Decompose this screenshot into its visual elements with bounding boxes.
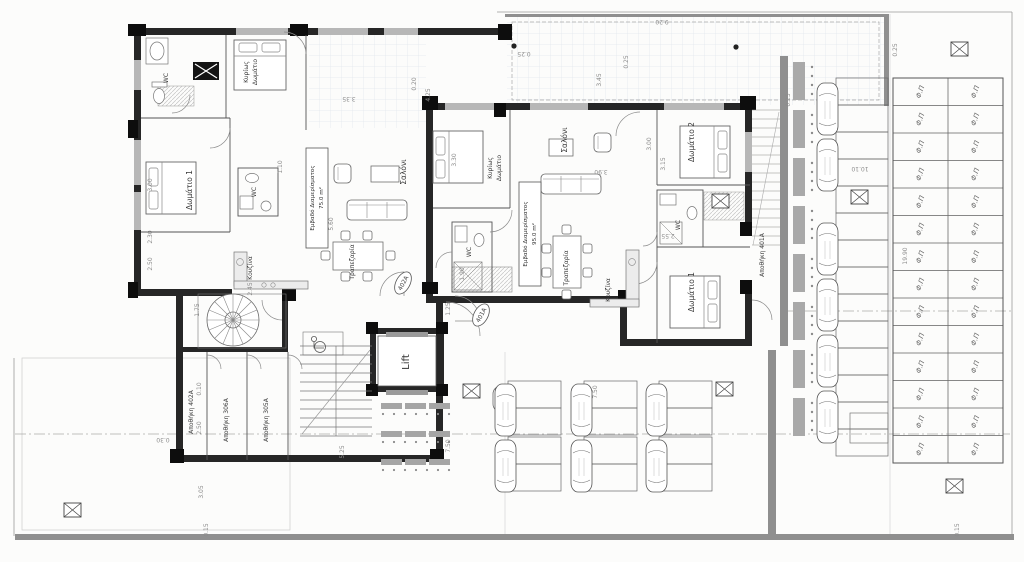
room-label-storage-306a: Αποθήκη 306Α [223, 397, 230, 442]
bike-rack-dot [811, 306, 813, 308]
dimension-label: 19.90 [902, 247, 909, 264]
shaft-marker [193, 62, 219, 80]
bike-rack-dot [811, 114, 813, 116]
unit-tag-402a: 402A [391, 269, 415, 297]
corridor-tiles [309, 35, 426, 128]
bike-rack-dot [811, 276, 813, 278]
car [495, 440, 516, 492]
bike-rack-bar [405, 403, 426, 409]
sofa [541, 174, 601, 194]
bike-rack-dot [811, 354, 813, 356]
side-stair [752, 110, 780, 245]
room-label-kitchen: Κουζίνα [247, 256, 254, 280]
bike-rack-bar [793, 110, 805, 148]
parking-stall [850, 413, 888, 443]
bike-rack-dot [811, 267, 813, 269]
bike-rack-bar [793, 62, 805, 100]
bike-rack-dot [415, 469, 417, 471]
dimension-label: 0.25 [623, 55, 630, 69]
bike-rack-dot [811, 84, 813, 86]
bike-rack-dot [811, 285, 813, 287]
bike-rack-dot [415, 413, 417, 415]
dimension-label: 0.15 [954, 523, 961, 537]
bike-rack-dot [393, 413, 395, 415]
armchair [334, 164, 351, 183]
parking-stall [836, 402, 888, 429]
area-label-402a: Εμβαδό Διαμερίσματος [309, 165, 316, 230]
bike-rack-dot [811, 420, 813, 422]
parking-stall [836, 429, 888, 456]
room-label-living: Σαλόνι [399, 159, 408, 185]
dimension-label: 0.25 [517, 50, 531, 57]
pv-panel-grid [893, 78, 1003, 463]
bike-rack-dot [811, 180, 813, 182]
bike-rack-dot [404, 441, 406, 443]
dimension-label: 3.05 [198, 485, 205, 499]
bike-rack-dot [811, 162, 813, 164]
bike-rack-dot [811, 324, 813, 326]
bike-rack-dot [811, 189, 813, 191]
dimension-label: 5.25 [339, 445, 346, 459]
dimension-label: 2.45 [247, 282, 254, 296]
parking-stall [836, 294, 888, 321]
room-label-wc: WC [675, 220, 682, 230]
dimension-label: 10.10 [851, 165, 868, 172]
room-label-bedroom2: Δωμάτιο 2 [687, 122, 696, 162]
terrace-column-dot [733, 44, 738, 49]
bike-rack-bar [429, 459, 450, 465]
bike-rack-dot [811, 141, 813, 143]
bike-rack-dot [404, 413, 406, 415]
bike-rack-dot [426, 413, 428, 415]
bike-rack-bar [793, 398, 805, 436]
bike-rack-dot [811, 315, 813, 317]
parking-stall [836, 321, 888, 348]
dimension-label: 7.50 [592, 385, 599, 399]
bike-rack-bar [381, 459, 402, 465]
bike-rack-dot [811, 429, 813, 431]
car [817, 139, 838, 191]
bike-rack-dot [382, 469, 384, 471]
dimension-label: 1.10 [277, 160, 284, 174]
dimension-label: 2.30 [147, 230, 154, 244]
bike-rack-bar [793, 206, 805, 244]
dimension-label: 1.25 [445, 302, 452, 316]
bike-rack-dot [426, 469, 428, 471]
parking-stall [836, 105, 888, 132]
bike-rack-dot [811, 210, 813, 212]
dining-set [321, 231, 395, 281]
car [817, 223, 838, 275]
bike-rack-dot [811, 66, 813, 68]
bike-rack-bar [793, 254, 805, 292]
dimension-label: 2.50 [147, 257, 154, 271]
bike-rack-dot [437, 441, 439, 443]
room-label-dining: Τραπεζαρία [563, 250, 570, 286]
dimension-label: 3.30 [451, 153, 458, 167]
bed [433, 131, 483, 183]
dimension-label: 0.15 [203, 523, 210, 537]
bike-rack-dot [448, 469, 450, 471]
wheelchair-symbol [303, 332, 343, 355]
room-label-master-bedroom: Δωμάτιο [496, 155, 503, 182]
car [817, 279, 838, 331]
room-label-storage-402a: Αποθήκη 402Α [188, 389, 195, 434]
bike-rack-dot [811, 75, 813, 77]
dimension-label: 2.50 [196, 421, 203, 435]
bike-rack-dot [811, 219, 813, 221]
bike-rack-bar [793, 350, 805, 388]
room-label-bedroom1: Δωμάτιο 1 [687, 272, 696, 312]
dimension-label: 3.15 [660, 157, 667, 171]
parking-stall [836, 267, 888, 294]
bike-rack-dot [811, 411, 813, 413]
bike-rack-bar [405, 431, 426, 437]
dimension-label: 7.50 [445, 439, 452, 453]
terrace-column-dot [511, 43, 516, 48]
bike-rack-dot [415, 441, 417, 443]
area-value-402a: 75.0 m² [318, 187, 325, 209]
room-label-bedroom1: Δωμάτιο 1 [185, 170, 194, 210]
parking-stall [836, 348, 888, 375]
parking-stall [836, 240, 888, 267]
bike-rack-dot [811, 372, 813, 374]
bike-rack-dot [404, 469, 406, 471]
bike-rack-dot [382, 413, 384, 415]
dimension-label: 0.10 [196, 382, 203, 396]
armchair [594, 133, 611, 152]
bike-rack-dot [811, 171, 813, 173]
dimension-label: 3.00 [646, 137, 653, 151]
dimension-label: 3.00 [147, 178, 154, 192]
bike-rack-dot [437, 469, 439, 471]
room-label-storage-305a: Αποθήκη 305Α [263, 397, 270, 442]
bike-rack-dot [811, 123, 813, 125]
parking-stall [836, 375, 888, 402]
room-label-living: Σαλόνι [560, 127, 569, 153]
car [817, 83, 838, 135]
bike-rack-bar [793, 302, 805, 340]
dimension-label: 4.25 [425, 88, 432, 102]
bike-rack-bar [793, 158, 805, 196]
spiral-stair [207, 294, 259, 346]
floor-plan-page: Φ.Π [0, 0, 1024, 562]
room-label-wc: WC [251, 187, 258, 197]
bike-rack-dot [811, 381, 813, 383]
bike-rack-dot [811, 333, 813, 335]
bike-rack-bar [381, 431, 402, 437]
car [571, 384, 592, 436]
bike-rack-dot [448, 413, 450, 415]
room-label-kitchen: Κουζίνα [605, 278, 612, 302]
bike-rack-bar [429, 431, 450, 437]
dimension-label: 0.30 [156, 436, 170, 443]
dimension-label: 1.75 [194, 303, 201, 317]
car [817, 391, 838, 443]
car [817, 335, 838, 387]
area-label-401a: Εμβαδό Διαμερίσματος [522, 201, 529, 266]
car [495, 384, 516, 436]
room-label-master-bedroom: Δωμάτιο [252, 59, 259, 86]
room-label-storage-401a: Αποθήκη 401Α [759, 232, 766, 277]
area-value-401a: 95.0 m² [531, 223, 538, 245]
bed [234, 40, 286, 90]
room-label-dining: Τραπεζαρία [349, 244, 356, 280]
bike-rack-bar [429, 403, 450, 409]
bike-rack-dot [437, 413, 439, 415]
lift-door [386, 332, 428, 337]
bike-rack-dot [811, 237, 813, 239]
dimension-label: 5.60 [328, 217, 335, 231]
room-label-master-bedroom: Κυρίως [243, 61, 250, 83]
car [646, 440, 667, 492]
bike-rack-bar [405, 459, 426, 465]
bike-rack-dot [811, 402, 813, 404]
parking-stall [836, 132, 888, 159]
dimension-label: 3.45 [596, 73, 603, 87]
room-label-master-bedroom: Κυρίως [487, 157, 494, 179]
room-label-lift: Lift [401, 354, 412, 370]
dimension-label: 0.25 [892, 43, 899, 57]
dimension-label: 3.35 [342, 95, 356, 102]
dimension-label: 2.55 [661, 232, 675, 239]
bike-rack-dot [811, 132, 813, 134]
parking-stall [836, 213, 888, 240]
room-label-wc: WC [466, 247, 473, 257]
bike-rack-bar [381, 403, 402, 409]
dimension-label: 0.20 [411, 77, 418, 91]
sofa [347, 200, 407, 220]
bike-rack-dot [393, 469, 395, 471]
main-stair [300, 346, 372, 436]
car [571, 440, 592, 492]
dimension-label: 3.90 [594, 168, 608, 175]
bike-rack-dot [811, 93, 813, 95]
floor-plan-drawing: Φ.Π [0, 0, 1024, 562]
dimension-label: 1.90 [459, 267, 466, 281]
coffee-table [371, 166, 399, 182]
bike-rack-dot [811, 258, 813, 260]
lift-door [386, 390, 428, 395]
room-label-wc: WC [163, 73, 170, 83]
bike-rack-dot [426, 441, 428, 443]
bike-rack-dot [393, 441, 395, 443]
car [646, 384, 667, 436]
bike-rack-dot [811, 228, 813, 230]
bike-rack-dot [811, 363, 813, 365]
dimension-label: 0.25 [785, 93, 792, 107]
bike-rack-dot [382, 441, 384, 443]
dimension-label: 9.20 [655, 18, 669, 25]
